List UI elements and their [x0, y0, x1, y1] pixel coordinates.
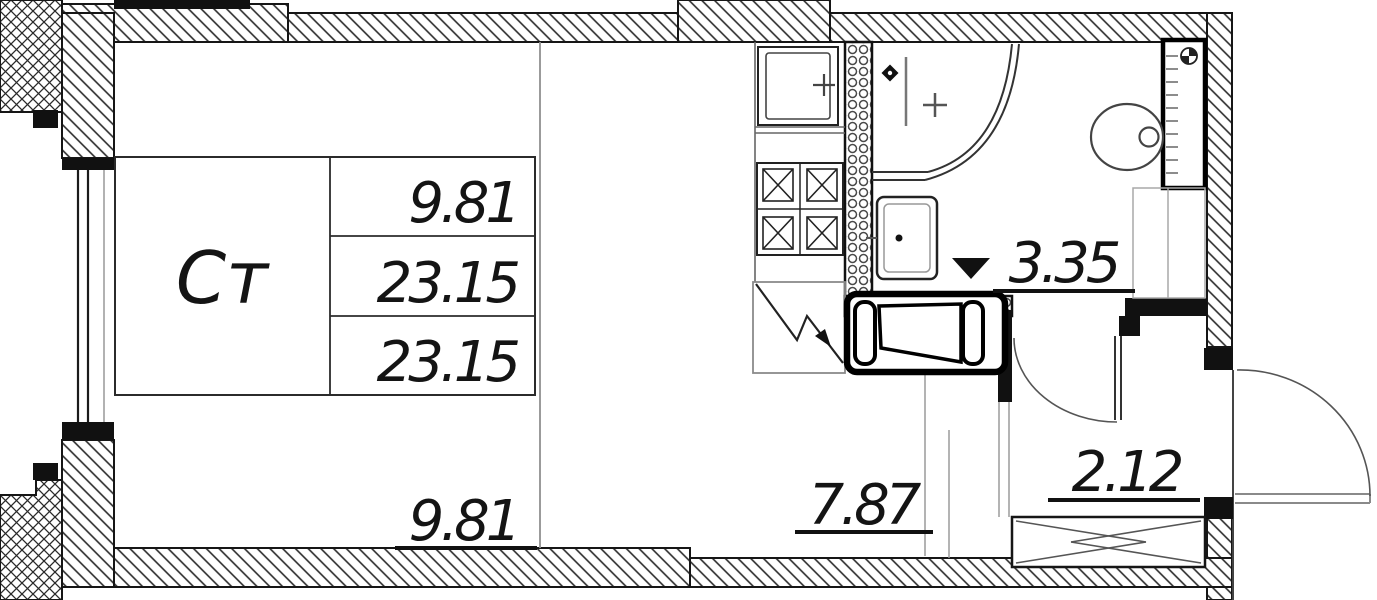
info-table-total-area: 23.15: [377, 251, 519, 316]
wall-top-raised-middle: [678, 0, 830, 42]
window: [62, 158, 114, 440]
wall-top-edge-cap: [114, 0, 250, 9]
level-mark-triangle: [952, 258, 990, 279]
entrance-jamb-bottom: [1204, 497, 1233, 519]
entrance-jamb-top: [1204, 348, 1233, 370]
info-table-total-area-2: 23.15: [377, 330, 519, 395]
window-cap-top: [62, 158, 114, 170]
bathroom-door: [1014, 316, 1140, 422]
burner-top-right: [807, 169, 837, 201]
bathroom-door-swing-arc: [1014, 338, 1117, 422]
pilaster-top-left: [0, 0, 62, 112]
wall-right-upper: [1207, 13, 1232, 347]
shower-head-icon: [882, 57, 947, 126]
sink-plus-mark: [813, 74, 835, 96]
kitchen-area-label: 7.87: [809, 473, 922, 538]
toilet: [1091, 104, 1163, 170]
washbasin: [866, 197, 937, 279]
burner-bottom-left: [763, 217, 793, 249]
vent-niche: [1133, 188, 1205, 298]
unit-type-label: Ст: [176, 236, 270, 320]
washbasin-drain-dot: [896, 235, 903, 242]
kitchen-sink: [758, 47, 838, 125]
fridge-niche-outline: [753, 282, 845, 373]
wall-bottom-left: [62, 548, 690, 587]
fold-out-zigzag-arrow: [756, 284, 843, 363]
wall-left-lower: [62, 440, 114, 587]
bathroom-door-jamb: [1119, 316, 1140, 336]
toilet-flush-button: [1140, 128, 1159, 147]
floor-plan: Ст 9.81 23.15 23.15 9.81 7.87 3.35 2.12: [0, 0, 1377, 600]
entrance-door-swing-arc: [1237, 370, 1370, 496]
sofa-armrest-left: [855, 302, 875, 364]
partition-kitchen-bathroom: [845, 42, 872, 316]
shower-screen-arc-outer: [928, 44, 1012, 172]
partition-bathroom-bottom-right: [1125, 298, 1207, 316]
pilaster-bottom-cap: [33, 463, 58, 480]
sofa-armrest-right: [963, 302, 983, 364]
pilasters: [0, 0, 62, 600]
pilaster-bottom-left: [0, 480, 62, 600]
sofa: [847, 294, 1005, 372]
vent-shaft: [1133, 40, 1205, 298]
stove: [757, 163, 843, 255]
bathroom-area-label: 3.35: [1009, 231, 1119, 296]
fridge-niche: [753, 282, 845, 373]
burner-top-left: [763, 169, 793, 201]
hallway-duct-box: [1012, 517, 1205, 567]
hallway-area-label: 2.12: [1072, 440, 1182, 505]
zigzag-arrowhead: [815, 329, 831, 347]
info-table: Ст 9.81 23.15 23.15: [115, 157, 535, 395]
washbasin-bowl: [877, 197, 937, 279]
floor-plan-drawing: Ст 9.81 23.15 23.15 9.81 7.87 3.35 2.12: [0, 0, 1377, 600]
pilaster-top-cap: [33, 110, 58, 128]
shower-screen-arc-inner: [925, 44, 1019, 180]
window-cap-bottom: [62, 422, 114, 440]
living-area-label: 9.81: [409, 489, 518, 554]
burner-bottom-right: [807, 217, 837, 249]
wall-left-upper: [62, 13, 114, 158]
shower-plus-mark: [923, 93, 947, 117]
shower: [872, 44, 1019, 180]
shower-head-dot: [888, 71, 892, 75]
info-table-living-area: 9.81: [408, 171, 517, 236]
